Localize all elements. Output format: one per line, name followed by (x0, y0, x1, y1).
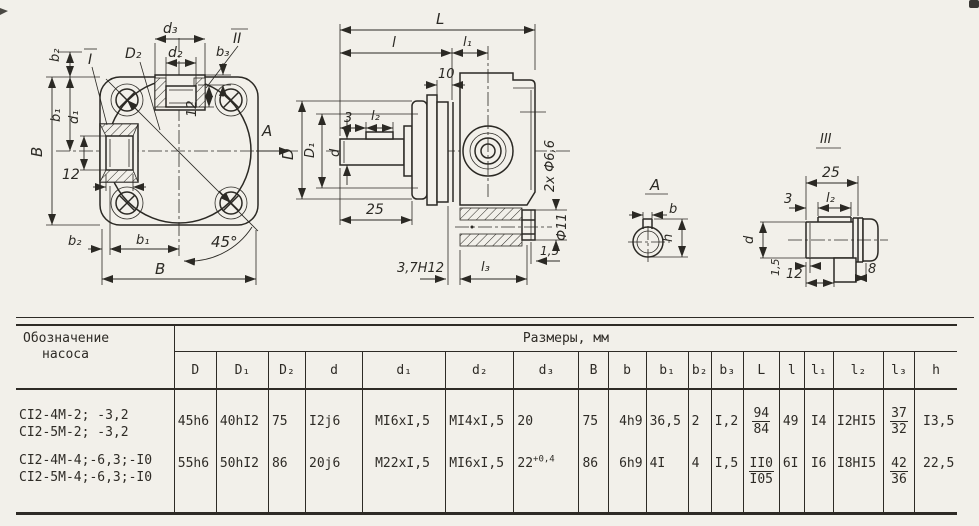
cell-d2: MI4xI,5 (446, 389, 514, 452)
pump-designation-cell: CI2-4M-2; -3,2 CI2-5M-2; -3,2 (16, 389, 174, 452)
bolt-hole (111, 84, 143, 116)
col-b1: b₁ (646, 352, 688, 390)
cell-D2: 75 (268, 389, 305, 452)
col-L: L (743, 352, 779, 390)
technical-drawing: B b₁ b₂ d₁ 12 d₃ d₂ II (0, 0, 979, 318)
dim-label-25-iii: 25 (822, 165, 840, 181)
cell-L: II0I05 (743, 452, 779, 514)
scan-artifact (0, 8, 8, 15)
dim-label-12-iii: 12 (786, 267, 803, 282)
pump-dimensions-table: Обозначение насоса Размеры, мм D D₁ D₂ d… (16, 324, 957, 515)
bolt-hole (111, 187, 143, 219)
dimension-table: Обозначение насоса Размеры, мм D D₁ D₂ d… (16, 317, 976, 515)
col-b2: b₂ (688, 352, 711, 390)
pump-name: CI2-5M-4;-6,3;-I0 (16, 469, 174, 486)
view-a: A b h (628, 176, 688, 262)
dim-label-l2-iii: l₂ (826, 191, 835, 206)
cell-b1: 4I (646, 452, 688, 514)
dim-label-b: b (669, 202, 677, 217)
dim-label-12-top: 12 (185, 100, 200, 117)
col-d: d (306, 352, 363, 390)
col-d3: d₃ (514, 352, 579, 390)
cell-d: 20j6 (306, 452, 363, 514)
dim-label-l3: l₃ (481, 260, 490, 275)
dim-label-25: 25 (366, 202, 384, 218)
cell-l3: 4236 (883, 452, 914, 514)
dim-label-h: h (661, 234, 676, 242)
side-port-section (100, 124, 138, 182)
col-D: D (174, 352, 216, 390)
cell-d3: 22+0,4 (514, 452, 579, 514)
col-l1: l₁ (804, 352, 833, 390)
dim-label-L: L (436, 10, 444, 28)
dim-label-d2: d₂ (168, 45, 183, 61)
col-b: b (608, 352, 646, 390)
dim-label-b1-left: b₁ (49, 109, 64, 122)
cell-l1: I4 (804, 389, 833, 452)
cell-d: I2j6 (306, 389, 363, 452)
table-top-rule (16, 317, 974, 318)
cell-b3: I,5 (711, 452, 743, 514)
col-l: l (779, 352, 804, 390)
dim-label-B-bottom: B (155, 260, 165, 278)
dim-label-45deg: 45° (211, 233, 238, 251)
bolt-hole (215, 84, 247, 116)
name-header-line1: Обозначение (16, 326, 174, 347)
front-view: B b₁ b₂ d₁ 12 d₃ d₂ II (28, 21, 298, 285)
dim-label-D2: D₂ (125, 46, 142, 62)
cell-b1: 36,5 (646, 389, 688, 452)
dim-label-b1-bottom: b₁ (136, 233, 149, 248)
dim-label-D: D (279, 148, 297, 160)
dim-label-d1: d₁ (67, 111, 82, 124)
dim-label-l2: l₂ (371, 109, 380, 124)
scan-artifact (969, 0, 979, 8)
pump-name: CI2-4M-2; -3,2 (16, 407, 174, 424)
dim-label-d-iii: d (742, 235, 757, 244)
dim-label-l1: l₁ (463, 35, 472, 50)
dim-label-b3: b₃ (216, 45, 229, 60)
dim-label-1-5-iii: 1,5 (769, 259, 782, 277)
cell-d1: MI6xI,5 (363, 389, 446, 452)
cell-b2: 2 (688, 389, 711, 452)
cell-D2: 86 (268, 452, 305, 514)
col-D1: D₁ (216, 352, 268, 390)
col-B: B (579, 352, 608, 390)
view-ii-label: II (233, 31, 241, 47)
side-view: L l l₁ 10 D D₁ d 3 l (279, 10, 572, 285)
cell-b3: I,2 (711, 389, 743, 452)
cell-b2: 4 (688, 452, 711, 514)
dim-label-3: 3 (344, 111, 352, 126)
view-arrow-a-label: A (261, 122, 272, 140)
cell-D1: 40hI2 (216, 389, 268, 452)
dim-label-12-left: 12 (62, 167, 80, 183)
cell-D: 45h6 (174, 389, 216, 452)
col-h: h (915, 352, 957, 390)
col-D2: D₂ (268, 352, 305, 390)
dim-label-phi11: Ф11 (555, 213, 570, 241)
cell-h: 22,5 (915, 452, 957, 514)
cell-l: 49 (779, 389, 804, 452)
dim-label-l: l (392, 35, 396, 51)
bolt-hole (215, 187, 247, 219)
view-a-label: A (649, 176, 660, 194)
col-d1: d₁ (363, 352, 446, 390)
dim-label-10: 10 (438, 67, 455, 82)
cell-l2: I8HI5 (833, 452, 883, 514)
cell-B: 86 (579, 452, 608, 514)
dim-label-d3: d₃ (163, 21, 178, 37)
cell-B: 75 (579, 389, 608, 452)
cell-l3: 3732 (883, 389, 914, 452)
cell-l1: I6 (804, 452, 833, 514)
cell-d3: 20 (514, 389, 579, 452)
pump-designation-cell: CI2-4M-4;-6,3;-I0 CI2-5M-4;-6,3;-I0 (16, 452, 174, 514)
name-column-header: Обозначение насоса (16, 325, 174, 389)
col-b3: b₃ (711, 352, 743, 390)
dim-label-1-5: 1,5 (540, 244, 559, 258)
cell-b: 4h9 (608, 389, 646, 452)
cell-D1: 50hI2 (216, 452, 268, 514)
pump-name: CI2-5M-2; -3,2 (16, 424, 174, 441)
dim-label-8-iii: 8 (868, 262, 876, 277)
cell-d1: M22xI,5 (363, 452, 446, 514)
cell-l: 6I (779, 452, 804, 514)
scanned-drawing-page: B b₁ b₂ d₁ 12 d₃ d₂ II (0, 0, 979, 526)
dim-label-b2-bottom: b₂ (68, 234, 81, 249)
cell-h: I3,5 (915, 389, 957, 452)
pump-name: CI2-4M-4;-6,3;-I0 (16, 452, 174, 469)
table-row: CI2-4M-2; -3,2 CI2-5M-2; -3,2 45h6 40hI2… (16, 389, 957, 452)
dim-label-D1: D₁ (303, 143, 318, 158)
section-iii: III 25 3 l₂ (742, 132, 888, 287)
section-iii-label: III (820, 132, 832, 147)
cell-D: 55h6 (174, 452, 216, 514)
view-i-label: I (88, 52, 92, 68)
cell-d2: MI6xI,5 (446, 452, 514, 514)
sizes-header: Размеры, мм (174, 325, 957, 352)
cell-b: 6h9 (608, 452, 646, 514)
dim-label-B-left: B (28, 147, 46, 157)
dim-label-b2-top: b₂ (48, 49, 63, 62)
table-row: CI2-4M-4;-6,3;-I0 CI2-5M-4;-6,3;-I0 55h6… (16, 452, 957, 514)
col-l2: l₂ (833, 352, 883, 390)
col-d2: d₂ (446, 352, 514, 390)
cell-l2: I2HI5 (833, 389, 883, 452)
dim-label-d: d (328, 148, 343, 157)
col-l3: l₃ (883, 352, 914, 390)
name-header-line2: насоса (16, 347, 174, 363)
dim-label-groove: 3,7H12 (397, 261, 444, 276)
dim-label-2x-phi66: 2x Ф6,6 (543, 140, 558, 192)
dim-label-3-iii: 3 (784, 192, 792, 207)
cell-L: 9484 (743, 389, 779, 452)
